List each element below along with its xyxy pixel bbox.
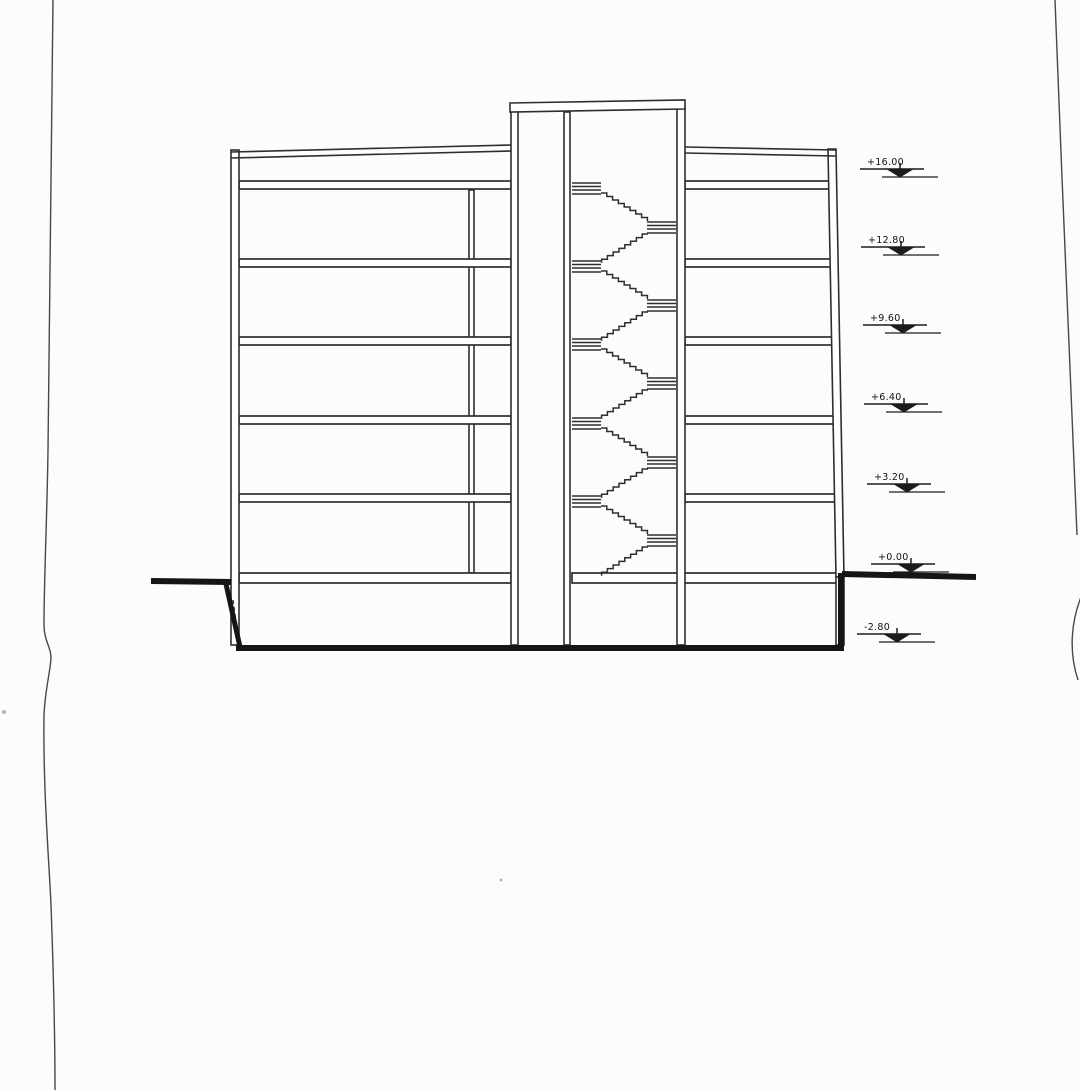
stair-tower-right-wall — [677, 106, 685, 645]
floor-slab — [685, 337, 836, 345]
stair-landing — [572, 261, 601, 272]
floor-slab — [685, 416, 836, 424]
stair-landing — [572, 183, 601, 194]
stair-flight — [601, 271, 647, 299]
ground-floor-slab — [239, 573, 511, 583]
stair-mid-landing — [647, 535, 676, 546]
stair-tower-roof — [510, 100, 685, 112]
level-label: +3.20 — [874, 472, 905, 483]
stair-mid-landing — [647, 300, 676, 311]
elevation-markers: +16.00 +12.80 +9.60 +6.40 +3.20 +0.00 -2… — [857, 157, 949, 642]
level-marker-minus-2-80: -2.80 — [857, 622, 935, 642]
stair-flight — [602, 469, 648, 498]
level-marker-plus-16-00: +16.00 — [860, 157, 938, 177]
level-marker-plus-3-20: +3.20 — [867, 472, 945, 492]
right-wing-roof — [685, 147, 836, 156]
ground-line-left — [151, 581, 231, 582]
floor-slab — [685, 181, 836, 189]
building-section-drawing: +16.00 +12.80 +9.60 +6.40 +3.20 +0.00 -2… — [0, 0, 1080, 1090]
left-wing-partition-wall — [469, 190, 474, 573]
floor-slab — [685, 494, 836, 502]
stair-flight — [601, 506, 647, 534]
scan-speck — [500, 879, 503, 882]
floor-slab — [239, 259, 511, 267]
stair-landing — [572, 418, 601, 429]
left-wing-roof — [231, 145, 511, 158]
stair-flight — [601, 193, 647, 221]
stair-flight — [601, 349, 647, 377]
right-wing-floor-slabs — [572, 181, 838, 583]
floor-slab — [239, 181, 511, 189]
level-label: +9.60 — [870, 313, 901, 324]
elevator-shaft-wall — [564, 112, 570, 645]
ground-floor-slab — [572, 573, 838, 583]
stair-flight — [602, 234, 648, 263]
right-exterior-wall — [828, 149, 844, 577]
stair-mid-landing — [647, 378, 676, 389]
level-label: +12.80 — [868, 235, 905, 246]
level-label: +6.40 — [871, 392, 902, 403]
scan-speck — [2, 710, 6, 714]
floor-slab — [239, 416, 511, 424]
level-label: +0.00 — [878, 552, 909, 563]
roofs — [231, 100, 836, 158]
level-marker-zero: +0.00 — [871, 552, 949, 572]
level-marker-plus-12-80: +12.80 — [861, 235, 939, 255]
stair-landing — [572, 496, 601, 507]
paper-crease-right — [1055, 0, 1080, 680]
level-marker-plus-6-40: +6.40 — [864, 392, 942, 412]
level-label: -2.80 — [864, 622, 890, 633]
floor-slab — [239, 494, 511, 502]
scanned-drawing-page: +16.00 +12.80 +9.60 +6.40 +3.20 +0.00 -2… — [0, 0, 1080, 1090]
stair-flight — [602, 390, 648, 419]
stair-tower-left-wall — [511, 106, 518, 645]
paper-crease-left — [44, 0, 55, 1090]
left-exterior-wall — [231, 150, 239, 645]
stair-mid-landing — [647, 457, 676, 468]
ground-line-right — [842, 574, 976, 577]
level-marker-plus-9-60: +9.60 — [863, 313, 941, 333]
stair-flight — [601, 428, 647, 456]
stair-mid-landing — [647, 222, 676, 233]
floor-slab — [239, 337, 511, 345]
staircase-section — [572, 183, 676, 576]
level-label: +16.00 — [867, 157, 904, 168]
stair-landing — [572, 339, 601, 350]
stair-flight — [602, 312, 648, 341]
floor-slab — [685, 259, 836, 267]
stair-flight — [602, 547, 648, 576]
